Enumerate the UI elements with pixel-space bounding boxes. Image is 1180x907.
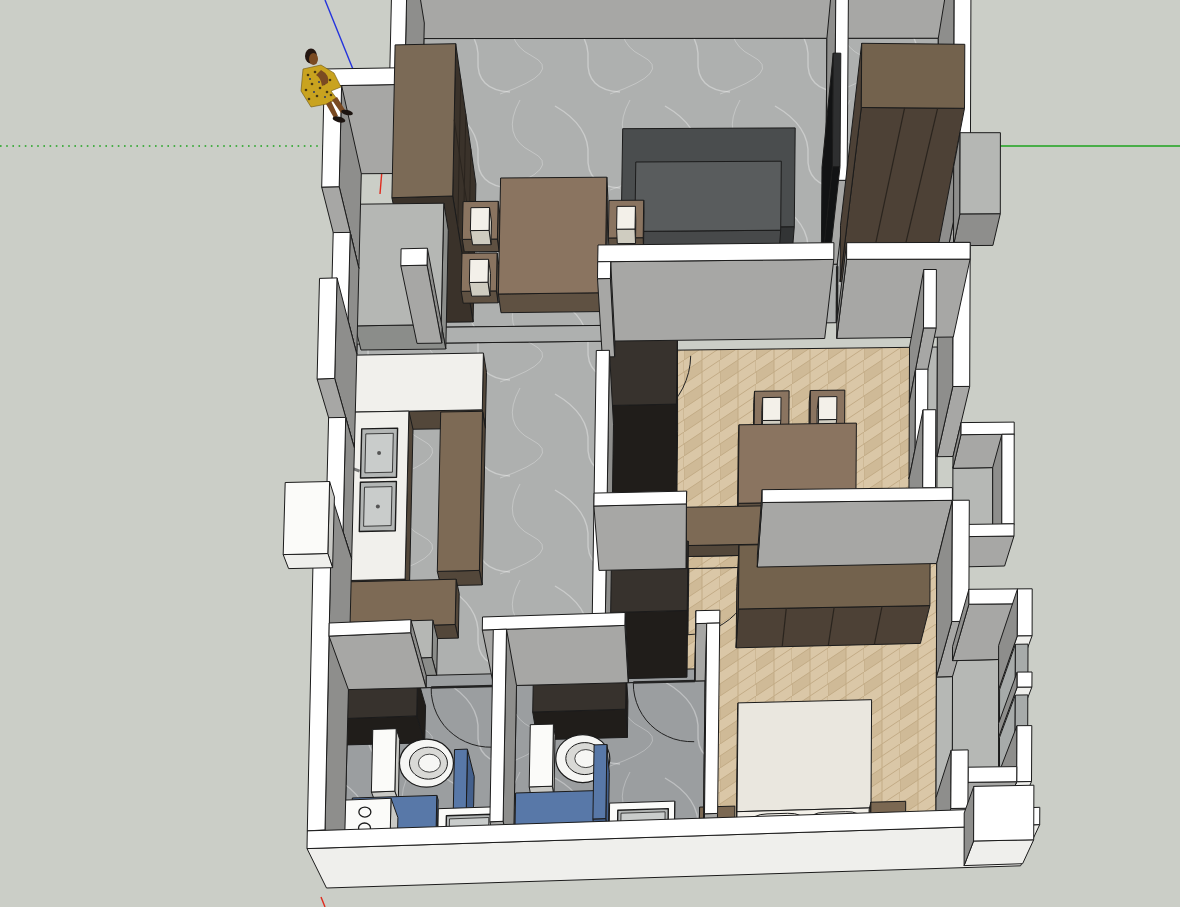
dining-chair-cushion-top [469, 259, 488, 282]
wall-north-exterior-face [393, 0, 971, 39]
wall-living-south-top [598, 243, 834, 262]
dining-table-top [498, 177, 606, 294]
wall-living-south-top [847, 242, 971, 259]
wall-hall-east-top [598, 262, 611, 279]
balcony-parapet-top [961, 422, 1014, 435]
bath2-shower-panel-top [593, 745, 607, 820]
dining-chair-cushion-top [470, 208, 489, 231]
threshold-living-hall [442, 325, 603, 343]
figure-dress-pattern [316, 95, 319, 98]
model-canvas[interactable] [0, 0, 1180, 907]
kitchen-cabinet-east-top [437, 411, 482, 571]
exterior-ac-box-face [283, 554, 332, 569]
wall-west-top [317, 278, 337, 379]
dining-chair-cushion-top [617, 206, 636, 229]
kitchen-sink-basin-drain [376, 504, 380, 508]
figure-dress-pattern [308, 98, 311, 101]
bay-window-south-top [968, 767, 1017, 783]
wall-study-south-top [594, 491, 687, 506]
wall-study-east-top [923, 410, 936, 488]
kitchen-sink-basin-drain [377, 451, 381, 455]
bookshelf-top [392, 44, 456, 198]
door-swing-bath-1-leaf [431, 686, 494, 688]
bath1-toilet-rim [418, 754, 440, 772]
exterior-ac-box-top [283, 482, 329, 555]
kitchen-counter-north-top [350, 353, 484, 412]
study-cabinet-top [608, 330, 678, 405]
bay-window-north-top [969, 589, 1018, 604]
sofa-seat-top [635, 161, 782, 231]
figure-dress-pattern [324, 96, 326, 98]
wall-study-south-top [762, 488, 952, 503]
figure-dress-pattern [313, 91, 315, 93]
study-cabinet-face [608, 404, 677, 500]
figure-dress-pattern [319, 87, 322, 90]
figure-dress-pattern [330, 94, 333, 97]
wall-bath-north-top [696, 610, 720, 623]
tv-panel-top [832, 53, 840, 167]
entry-step-box-face [964, 840, 1034, 866]
figure-dress-pattern [311, 83, 314, 86]
exterior-ledge-top [960, 133, 1001, 214]
wall-bath2-bedroom-top [705, 623, 720, 814]
figure-dress-pattern [329, 79, 332, 82]
wall-living-south-top [401, 248, 428, 266]
dining-chair-cushion-face [470, 230, 491, 244]
desk-chair-cushion-top [763, 397, 782, 420]
bath1-toilet-tank-top [371, 729, 396, 792]
figure-dress-pattern [326, 91, 329, 94]
wall-living-south-face [837, 259, 970, 338]
wall-living-south-face [598, 259, 834, 341]
figure-head [309, 53, 318, 65]
wall-bath-divider-top [490, 629, 507, 822]
dining-chair-cushion-face [617, 229, 636, 244]
bay-window-mullion-top [1017, 726, 1032, 782]
desk-chair-cushion-top [819, 397, 837, 420]
wall-study-east-top [924, 270, 937, 328]
bath2-toilet-tank-top [529, 724, 553, 787]
figure-dress-pattern [307, 74, 310, 77]
wall-study-south-face [757, 500, 952, 567]
wall-east-top [951, 750, 968, 809]
bed-duvet-top [737, 700, 872, 812]
figure-dress-pattern [314, 71, 317, 74]
bay-window-mullion-top [1017, 672, 1032, 687]
exterior-ledge-face [954, 214, 1001, 246]
figure-dress-pattern [318, 81, 320, 83]
sketchup-viewport[interactable] [0, 0, 1180, 907]
bay-window-mullion-top [1017, 589, 1032, 636]
model-layer [283, 0, 1040, 888]
wall-study-south-face [594, 504, 687, 571]
closet-wardrobe-top [861, 43, 965, 108]
door-swing-bath-2-leaf [633, 681, 695, 683]
wall-bath-north-top [329, 620, 411, 636]
balcony-parapet-top [1002, 434, 1014, 524]
entry-step-box-top [974, 785, 1034, 841]
burner-circle [359, 807, 371, 817]
dining-chair-cushion-face [469, 282, 490, 296]
figure-dress-pattern [305, 89, 308, 92]
dining-table-face [498, 293, 606, 313]
figure-dress-pattern [309, 78, 311, 80]
